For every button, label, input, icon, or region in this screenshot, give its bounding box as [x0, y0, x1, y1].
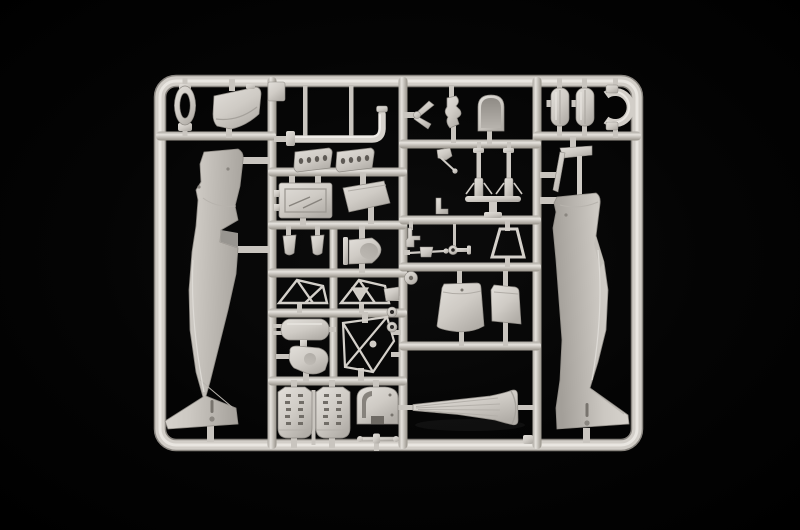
- runner-vertical-sub: [330, 221, 338, 383]
- runner-h-left: [156, 132, 276, 141]
- part-small-plate: [268, 82, 285, 101]
- sprue-photo: [0, 0, 800, 530]
- part-engine-blocks: [278, 380, 350, 448]
- photo-canvas: [0, 0, 800, 530]
- part-bottom-pad: [523, 435, 533, 444]
- part-tail-wheel: [405, 272, 418, 285]
